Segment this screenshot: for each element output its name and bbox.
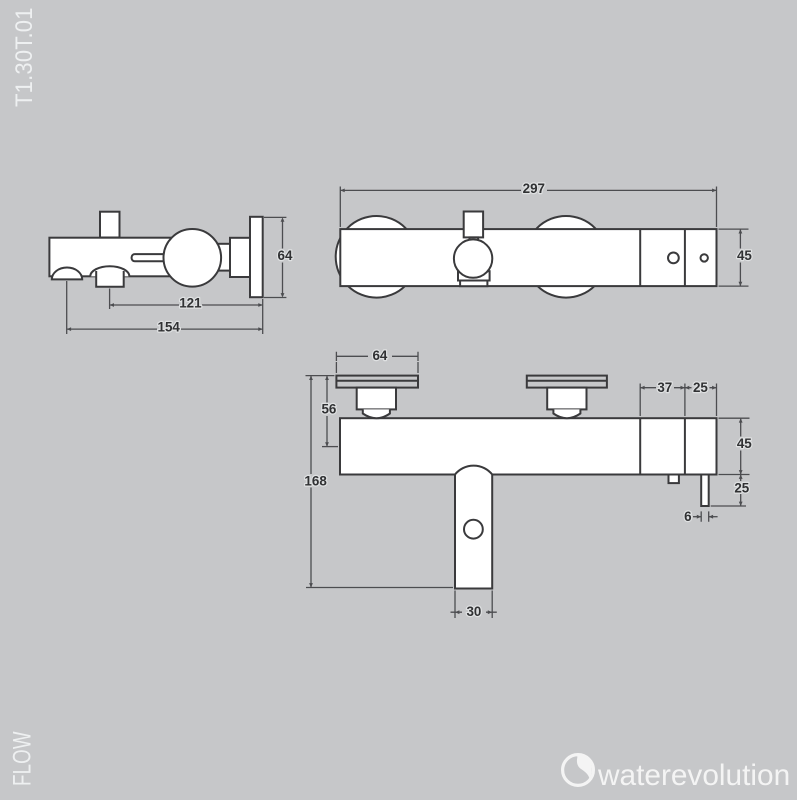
svg-text:25: 25 xyxy=(734,480,749,495)
svg-text:6: 6 xyxy=(684,509,691,524)
svg-text:56: 56 xyxy=(321,402,336,417)
svg-text:297: 297 xyxy=(523,181,545,196)
svg-text:168: 168 xyxy=(304,474,327,489)
svg-text:30: 30 xyxy=(466,604,481,619)
svg-text:64: 64 xyxy=(278,248,293,263)
svg-text:45: 45 xyxy=(737,248,752,263)
svg-text:45: 45 xyxy=(737,436,752,451)
svg-text:T1.30T.01: T1.30T.01 xyxy=(10,7,37,107)
svg-text:154: 154 xyxy=(158,320,181,335)
svg-text:121: 121 xyxy=(179,296,202,311)
svg-text:waterevolution: waterevolution xyxy=(597,759,790,792)
svg-text:FLOW: FLOW xyxy=(8,731,36,786)
svg-text:37: 37 xyxy=(657,380,672,395)
svg-text:25: 25 xyxy=(693,380,708,395)
svg-text:64: 64 xyxy=(372,348,387,363)
